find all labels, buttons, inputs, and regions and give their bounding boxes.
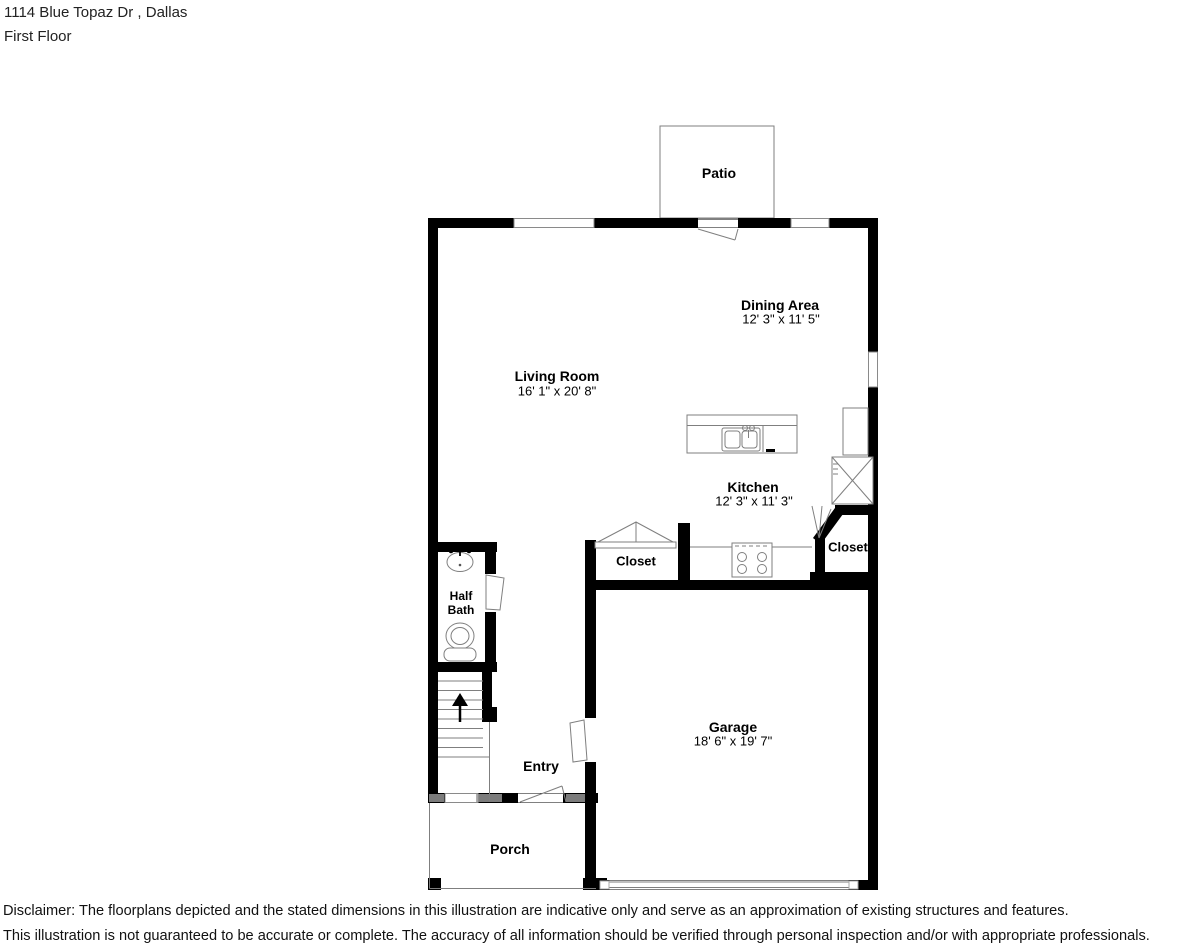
right-closet-label: Closet bbox=[828, 541, 868, 556]
toilet-bowl-inner bbox=[451, 628, 469, 645]
toilet-bowl-icon bbox=[446, 623, 474, 649]
toilet-tank bbox=[444, 648, 476, 661]
half-bath-label: Half Bath bbox=[439, 590, 483, 618]
refrigerator-fixture bbox=[843, 408, 868, 455]
front-door-opening bbox=[518, 794, 563, 803]
window-front-wall bbox=[445, 794, 478, 803]
halfbath-door-leaf bbox=[486, 575, 504, 610]
floorplan-page: 1114 Blue Topaz Dr , Dallas First Floor bbox=[0, 0, 1188, 946]
kitchen-dims: 12' 3" x 11' 3" bbox=[715, 494, 793, 509]
left-wall bbox=[428, 218, 438, 803]
disclaimer-line-1: Disclaimer: The floorplans depicted and … bbox=[3, 903, 1069, 919]
floorplan-drawing bbox=[0, 0, 1188, 946]
dining-dims: 12' 3" x 11' 5" bbox=[742, 312, 820, 327]
dishwasher-handle bbox=[766, 449, 775, 452]
garage-left-wall bbox=[585, 540, 596, 890]
window-top-left bbox=[514, 219, 594, 228]
living-room-dims: 16' 1" x 20' 8" bbox=[518, 384, 597, 399]
window-top-right bbox=[791, 219, 829, 228]
stair-wall-stub bbox=[482, 707, 497, 722]
sink-tap-dot bbox=[467, 549, 472, 554]
entry-label: Entry bbox=[523, 758, 559, 774]
right-closet-bottom-wall bbox=[810, 572, 878, 582]
closet-door-fan-1 bbox=[812, 506, 819, 538]
window-right-wall bbox=[869, 352, 878, 387]
kitchen-closet-label: Closet bbox=[616, 555, 656, 570]
wall-artifact bbox=[429, 794, 444, 802]
disclaimer-line-2: This illustration is not guaranteed to b… bbox=[3, 928, 1150, 944]
garage-entry-door-leaf bbox=[570, 720, 587, 762]
garage-door-panel bbox=[609, 882, 849, 888]
patio-door-leaf bbox=[735, 229, 738, 240]
wall-artifact bbox=[566, 794, 585, 802]
garage-door-cap bbox=[600, 881, 609, 889]
kitchen-closet-right-wall bbox=[678, 523, 690, 590]
patio-label: Patio bbox=[702, 165, 736, 181]
patio-door-swing bbox=[698, 229, 735, 240]
garage-dims: 18' 6" x 19' 7" bbox=[694, 734, 773, 749]
right-wall bbox=[868, 218, 878, 890]
sink-tap-dot bbox=[449, 549, 454, 554]
living-room-label: Living Room bbox=[515, 368, 600, 384]
porch-label: Porch bbox=[490, 841, 530, 857]
closet-sill bbox=[595, 542, 676, 548]
garage-door-cap bbox=[849, 881, 858, 889]
sink-drain bbox=[459, 564, 462, 567]
